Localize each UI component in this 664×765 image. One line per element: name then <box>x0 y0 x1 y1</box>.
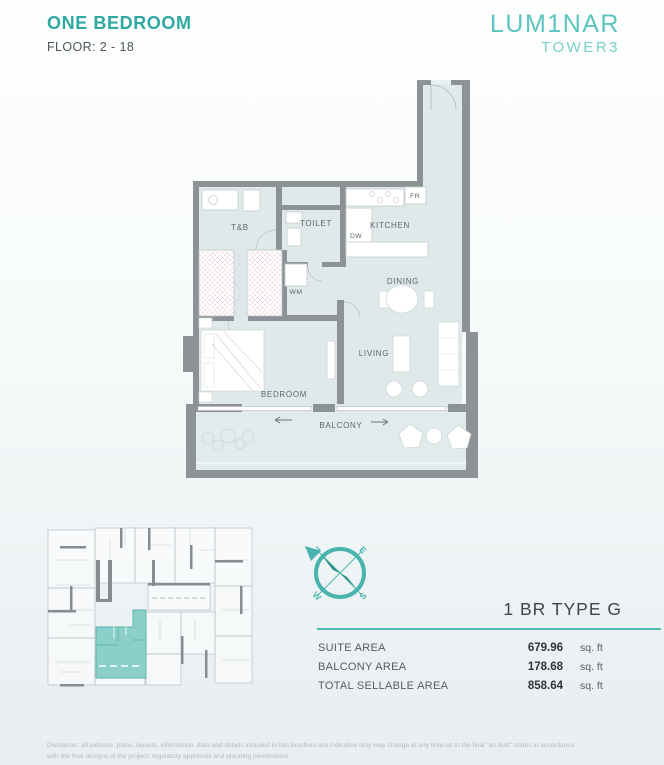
table-row: SUITE AREA 679.96 sq. ft <box>318 638 621 657</box>
label-toilet: TOILET <box>300 219 332 228</box>
area-row-value: 178.68 <box>503 661 563 673</box>
entry-opening <box>431 80 451 85</box>
label-dw: DW <box>350 233 362 240</box>
brochure-page: ONE BEDROOM FLOOR: 2 - 18 LUM1NAR TOWER3 <box>0 0 664 765</box>
logo-tower: TOWER3 <box>490 39 620 56</box>
table-row: TOTAL SELLABLE AREA 858.64 sq. ft <box>318 676 621 695</box>
bedroom-furniture <box>199 318 264 402</box>
floor-range: FLOOR: 2 - 18 <box>47 40 192 54</box>
corridor-floor <box>423 82 462 188</box>
area-row-unit: sq. ft <box>563 642 621 654</box>
key-plan-highlighted-unit <box>96 610 146 678</box>
balcony-glass <box>196 462 466 464</box>
disclaimer: Disclaimer: all pictures, plans, layouts… <box>47 741 632 762</box>
key-plan <box>32 520 260 712</box>
area-row-label: BALCONY AREA <box>318 661 503 673</box>
area-row-value: 679.96 <box>503 642 563 654</box>
area-row-label: TOTAL SELLABLE AREA <box>318 680 503 692</box>
table-row: BALCONY AREA 178.68 sq. ft <box>318 657 621 676</box>
disclaimer-line2: with the final designs of the project, r… <box>47 752 632 763</box>
area-row-label: SUITE AREA <box>318 642 503 654</box>
teal-divider <box>317 628 661 630</box>
disclaimer-line1: Disclaimer: all pictures, plans, layouts… <box>47 741 632 752</box>
unit-type-title: 1 BR TYPE G <box>318 599 661 620</box>
label-balcony: BALCONY <box>319 421 362 430</box>
label-tb: T&B <box>231 223 249 232</box>
logo-name: LUM1NAR <box>490 12 620 37</box>
key-plan-units <box>48 528 252 685</box>
area-row-value: 858.64 <box>503 680 563 692</box>
page-title: ONE BEDROOM <box>47 13 192 34</box>
label-fr: FR <box>410 193 420 200</box>
label-wm: WM <box>290 289 303 296</box>
label-living: LIVING <box>359 349 389 358</box>
area-row-unit: sq. ft <box>563 661 621 673</box>
label-bedroom: BEDROOM <box>261 390 307 399</box>
brand-logo: LUM1NAR TOWER3 <box>490 12 620 56</box>
floor-plan: T&B TOILET DW KITCHEN FR WM DINING LIVIN… <box>170 76 506 486</box>
label-kitchen: KITCHEN <box>370 221 410 230</box>
label-dining: DINING <box>387 277 419 286</box>
header-left: ONE BEDROOM FLOOR: 2 - 18 <box>47 13 192 54</box>
area-table: SUITE AREA 679.96 sq. ft BALCONY AREA 17… <box>318 638 661 695</box>
area-row-unit: sq. ft <box>563 680 621 692</box>
living-slider-sill <box>337 407 446 411</box>
bedroom-slider-sill <box>198 407 311 411</box>
